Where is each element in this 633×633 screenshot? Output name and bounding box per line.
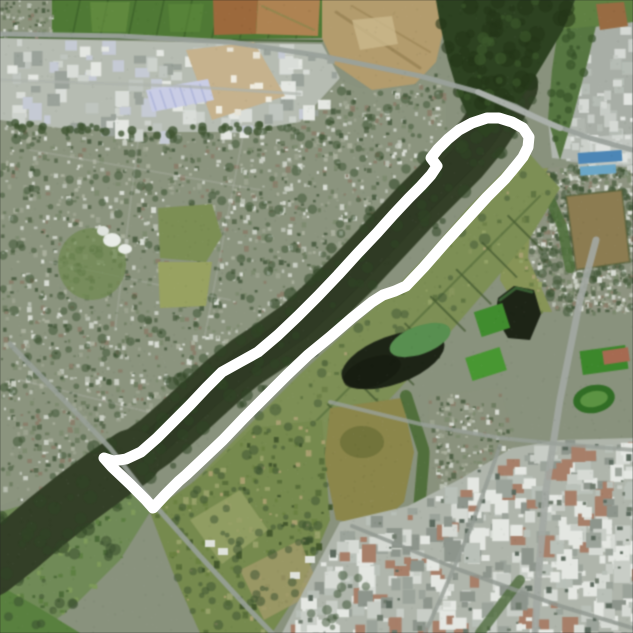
route-overlay-layer [0,0,633,633]
map-viewport[interactable] [0,0,633,633]
gps-route-path [104,118,529,508]
